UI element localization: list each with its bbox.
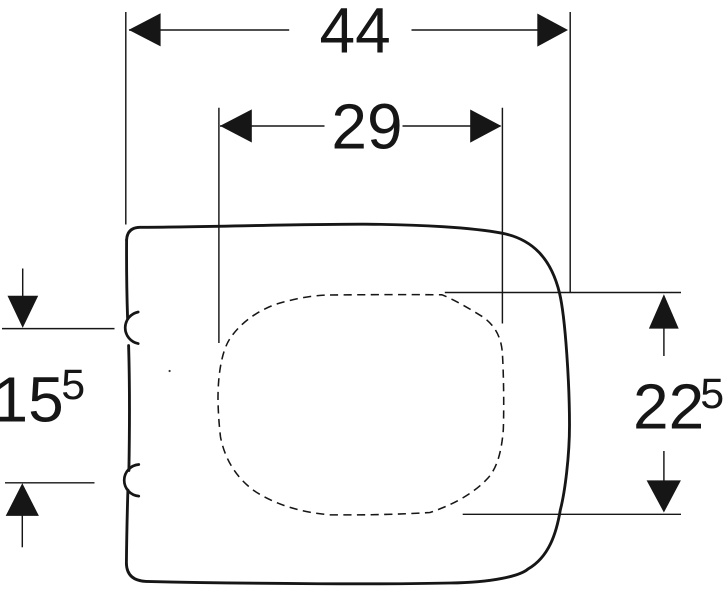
svg-text:225: 225	[633, 370, 724, 442]
svg-text:44: 44	[320, 0, 391, 66]
svg-text:29: 29	[331, 90, 402, 162]
svg-text:155: 155	[0, 361, 85, 436]
